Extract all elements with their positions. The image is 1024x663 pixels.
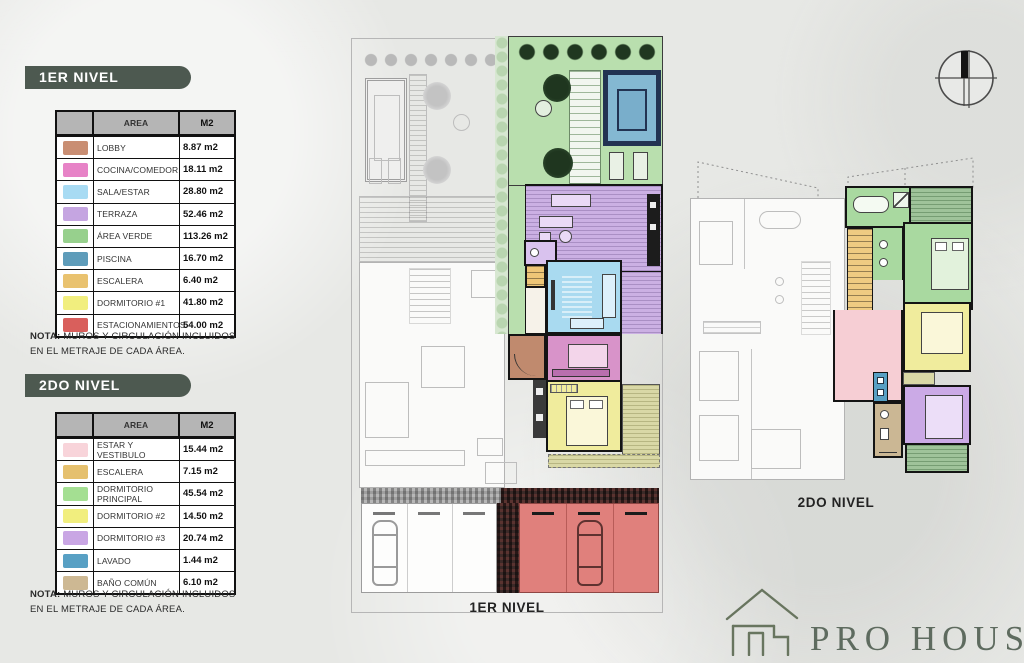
legend-m2-value: 20.74 m2 (180, 528, 234, 549)
legend-m2-value: 113.26 m2 (180, 226, 234, 247)
level2-note: NOTA: MUROS Y CIRCULACIÓN INCLUIDOS EN E… (30, 588, 248, 617)
neighbor-lounger (369, 158, 382, 184)
closet-strip (903, 372, 935, 385)
legend-row: ESCALERA6.40 m2 (57, 269, 234, 291)
tree-row-dark (515, 40, 659, 64)
level1-legend-table: AREA M2 LOBBY8.87 m2COCINA/COMEDOR18.11 … (55, 110, 236, 338)
stair-run (525, 288, 546, 334)
neighbor-dining (421, 346, 465, 388)
color-swatch (63, 531, 88, 545)
legend-row: ESCALERA7.15 m2 (57, 460, 234, 482)
color-swatch (63, 252, 88, 266)
bedroom-terrace-strip (548, 454, 660, 468)
legend-area-label: COCINA/COMEDOR (94, 159, 180, 180)
terrace-console (551, 194, 591, 207)
color-swatch (63, 207, 88, 221)
door-handle (373, 512, 395, 515)
toilet-icon (880, 428, 889, 440)
logo-text: PRO HOUSE (810, 621, 1024, 656)
car-icon (372, 520, 398, 586)
sink-icon (879, 258, 888, 267)
note-text: MUROS Y CIRCULACIÓN INCLUIDOS EN EL METR… (30, 589, 235, 615)
room-dormitorio-principal (903, 222, 973, 310)
legend-swatch-cell (57, 137, 94, 158)
tv-icon (551, 280, 555, 310)
color-swatch (63, 296, 88, 310)
level2-plan-label: 2DO NIVEL (765, 495, 907, 510)
sink-icon (879, 240, 888, 249)
neighbor-tub (759, 211, 801, 229)
legend-area-label: DORMITORIO #3 (94, 528, 180, 549)
lounger (609, 152, 624, 180)
legend-m2-value: 7.15 m2 (180, 461, 234, 482)
level2-legend-table: AREA M2 ESTAR Y VESTIBULO15.44 m2ESCALER… (55, 412, 236, 595)
note-label: NOTA: (30, 331, 60, 342)
legend-row: DORMITORIO #214.50 m2 (57, 505, 234, 527)
room-dormitorio-3 (903, 385, 971, 445)
lounger (633, 152, 648, 180)
room-estacionamientos (519, 503, 659, 593)
neighbor-bath (751, 429, 801, 469)
room-piscina (603, 70, 661, 146)
tree-icon (543, 148, 573, 178)
note-label: NOTA: (30, 589, 60, 600)
house-outline-icon (722, 584, 802, 656)
balcony-dorm3 (905, 445, 969, 473)
legend-header-swatch (57, 414, 94, 436)
toilet-icon (530, 248, 539, 257)
legend-row: DORMITORIO #141.80 m2 (57, 291, 234, 313)
legend-swatch-cell (57, 292, 94, 313)
neighbor-bed (699, 415, 739, 461)
legend-header-area: AREA (94, 112, 180, 134)
legend-area-label: PISCINA (94, 248, 180, 269)
level1-floor-plan: 1ER NIVEL (345, 30, 675, 630)
legend-area-label: LOBBY (94, 137, 180, 158)
legend-row: TERRAZA52.46 m2 (57, 203, 234, 225)
garage-neighbor (361, 503, 497, 593)
legend-header-m2: M2 (180, 414, 234, 436)
bedroom-terrace (622, 384, 660, 460)
level1-note: NOTA: MUROS Y CIRCULACIÓN INCLUIDOS EN E… (30, 330, 248, 359)
tree-icon (543, 74, 571, 102)
legend-m2-value: 1.44 m2 (180, 550, 234, 571)
neighbor-lounger (388, 158, 401, 184)
legend-header-swatch (57, 112, 94, 134)
neighbor-bed (699, 221, 733, 265)
color-swatch (63, 443, 88, 457)
tree-icon (423, 82, 451, 110)
legend-m2-value: 52.46 m2 (180, 204, 234, 225)
legend-swatch-cell (57, 159, 94, 180)
garden-walkway (569, 70, 601, 184)
legend-area-label: SALA/ESTAR (94, 181, 180, 202)
dining-table (568, 344, 608, 368)
legend-row: LAVADO1.44 m2 (57, 549, 234, 571)
legend-swatch-cell (57, 506, 94, 527)
legend-m2-value: 28.80 m2 (180, 181, 234, 202)
utility-box (477, 438, 503, 456)
room-cocina-comedor (546, 334, 622, 382)
neighbor-bed (365, 382, 409, 438)
legend-header-m2: M2 (180, 112, 234, 134)
neighbor-kitchen (365, 450, 465, 466)
pro-house-logo: PRO HOUSE (722, 584, 1024, 656)
shower-icon (893, 192, 909, 208)
legend-m2-value: 6.40 m2 (180, 270, 234, 291)
room-lobby (508, 334, 546, 380)
color-swatch (63, 509, 88, 523)
car-icon (577, 520, 603, 586)
legend-swatch-cell (57, 528, 94, 549)
tree-row-gray (361, 50, 501, 72)
door-handle (418, 512, 440, 515)
outdoor-kitchen (647, 194, 660, 266)
legend-swatch-cell (57, 248, 94, 269)
legend-area-label: DORMITORIO #1 (94, 292, 180, 313)
legend-m2-value: 18.11 m2 (180, 159, 234, 180)
sofa (602, 274, 616, 318)
room-escalera (525, 264, 546, 288)
room-terraza-wing (622, 272, 663, 334)
legend-area-label: ESTAR Y VESTIBULO (94, 439, 180, 460)
legend-area-label: ÁREA VERDE (94, 226, 180, 247)
room-estar-vestibulo (833, 310, 903, 402)
legend-row: ESTAR Y VESTIBULO15.44 m2 (57, 438, 234, 460)
bed-icon (921, 312, 963, 354)
terrace-sofa (539, 216, 573, 228)
room-dormitorio-2 (903, 302, 971, 372)
sink-icon (880, 410, 889, 419)
legend-area-label: ESCALERA (94, 461, 180, 482)
room-escalera (847, 228, 873, 318)
garden-table (535, 100, 552, 117)
color-swatch (63, 487, 88, 501)
legend-area-label: LAVADO (94, 550, 180, 571)
pool-inner (617, 89, 647, 131)
legend-swatch-cell (57, 226, 94, 247)
legend-area-label: ESCALERA (94, 270, 180, 291)
color-swatch (63, 274, 88, 288)
north-compass-icon (932, 46, 1000, 116)
legend-swatch-cell (57, 181, 94, 202)
room-bano-comun (873, 402, 903, 458)
legend-row: DORMITORIO PRINCIPAL45.54 m2 (57, 482, 234, 504)
kitchen-counter (552, 369, 610, 377)
legend-m2-value: 16.70 m2 (180, 248, 234, 269)
garage-hatch-gray (361, 488, 501, 503)
rug (562, 276, 592, 318)
bed-icon (566, 396, 608, 446)
door-handle (578, 512, 600, 515)
door-swing (514, 354, 536, 376)
legend-row: LOBBY8.87 m2 (57, 136, 234, 158)
legend-header-row: AREA M2 (57, 112, 234, 136)
garage-divider-hatch (497, 503, 519, 593)
legend-header-row: AREA M2 (57, 414, 234, 438)
legend-row: SALA/ESTAR28.80 m2 (57, 180, 234, 202)
color-swatch (63, 554, 88, 568)
legend-m2-value: 41.80 m2 (180, 292, 234, 313)
legend-m2-value: 15.44 m2 (180, 439, 234, 460)
legend-header-area: AREA (94, 414, 180, 436)
tree-icon (423, 156, 451, 184)
room-sala-estar (546, 260, 622, 334)
level2-floor-plan: 2DO NIVEL (685, 150, 985, 525)
garage-hatch-dark (501, 488, 659, 503)
neighbor-table (453, 114, 470, 131)
color-swatch (63, 185, 88, 199)
bathtub-icon (853, 196, 889, 213)
utility-box (485, 462, 517, 484)
legend-swatch-cell (57, 439, 94, 460)
neighbor-deck (359, 196, 499, 262)
legend-row: PISCINA16.70 m2 (57, 247, 234, 269)
level2-badge: 2DO NIVEL (25, 374, 191, 397)
legend-area-label: TERRAZA (94, 204, 180, 225)
room-bano-principal (845, 186, 911, 228)
level1-plan-label: 1ER NIVEL (437, 600, 577, 615)
neighbor-stairs (801, 261, 831, 335)
legend-m2-value: 8.87 m2 (180, 137, 234, 158)
level1-badge: 1ER NIVEL (25, 66, 191, 89)
hedge-strip (495, 36, 508, 334)
hall-vanity (873, 228, 903, 280)
terrace-table (559, 230, 572, 243)
legend-area-label: DORMITORIO #2 (94, 506, 180, 527)
color-swatch (63, 163, 88, 177)
room-bano-dorm1 (533, 380, 546, 438)
legend-swatch-cell (57, 461, 94, 482)
bed-icon (925, 395, 963, 439)
color-swatch (63, 229, 88, 243)
note-text: MUROS Y CIRCULACIÓN INCLUIDOS EN EL METR… (30, 331, 235, 357)
closet (550, 384, 578, 393)
sofa (570, 318, 604, 329)
legend-row: ÁREA VERDE113.26 m2 (57, 225, 234, 247)
room-lavado (873, 372, 888, 402)
floorplan-sheet: { "level1": { "badge": "1ER NIVEL", "pla… (0, 0, 1024, 663)
legend-m2-value: 45.54 m2 (180, 483, 234, 504)
neighbor-stairs (409, 268, 451, 324)
legend-swatch-cell (57, 483, 94, 504)
legend-area-label: DORMITORIO PRINCIPAL (94, 483, 180, 504)
door-handle (625, 512, 647, 515)
color-swatch (63, 465, 88, 479)
door-handle (463, 512, 485, 515)
legend-m2-value: 14.50 m2 (180, 506, 234, 527)
legend-swatch-cell (57, 270, 94, 291)
garden-side-strip (508, 186, 525, 334)
color-swatch (63, 141, 88, 155)
neighbor-unit-gray (690, 198, 845, 480)
legend-swatch-cell (57, 204, 94, 225)
neighbor-bed (699, 351, 739, 401)
legend-swatch-cell (57, 550, 94, 571)
legend-row: COCINA/COMEDOR18.11 m2 (57, 158, 234, 180)
bed-icon (931, 238, 969, 290)
room-dormitorio-1 (546, 380, 622, 452)
neighbor-balcony (703, 321, 761, 334)
legend-row: DORMITORIO #320.74 m2 (57, 527, 234, 549)
door-handle (532, 512, 554, 515)
